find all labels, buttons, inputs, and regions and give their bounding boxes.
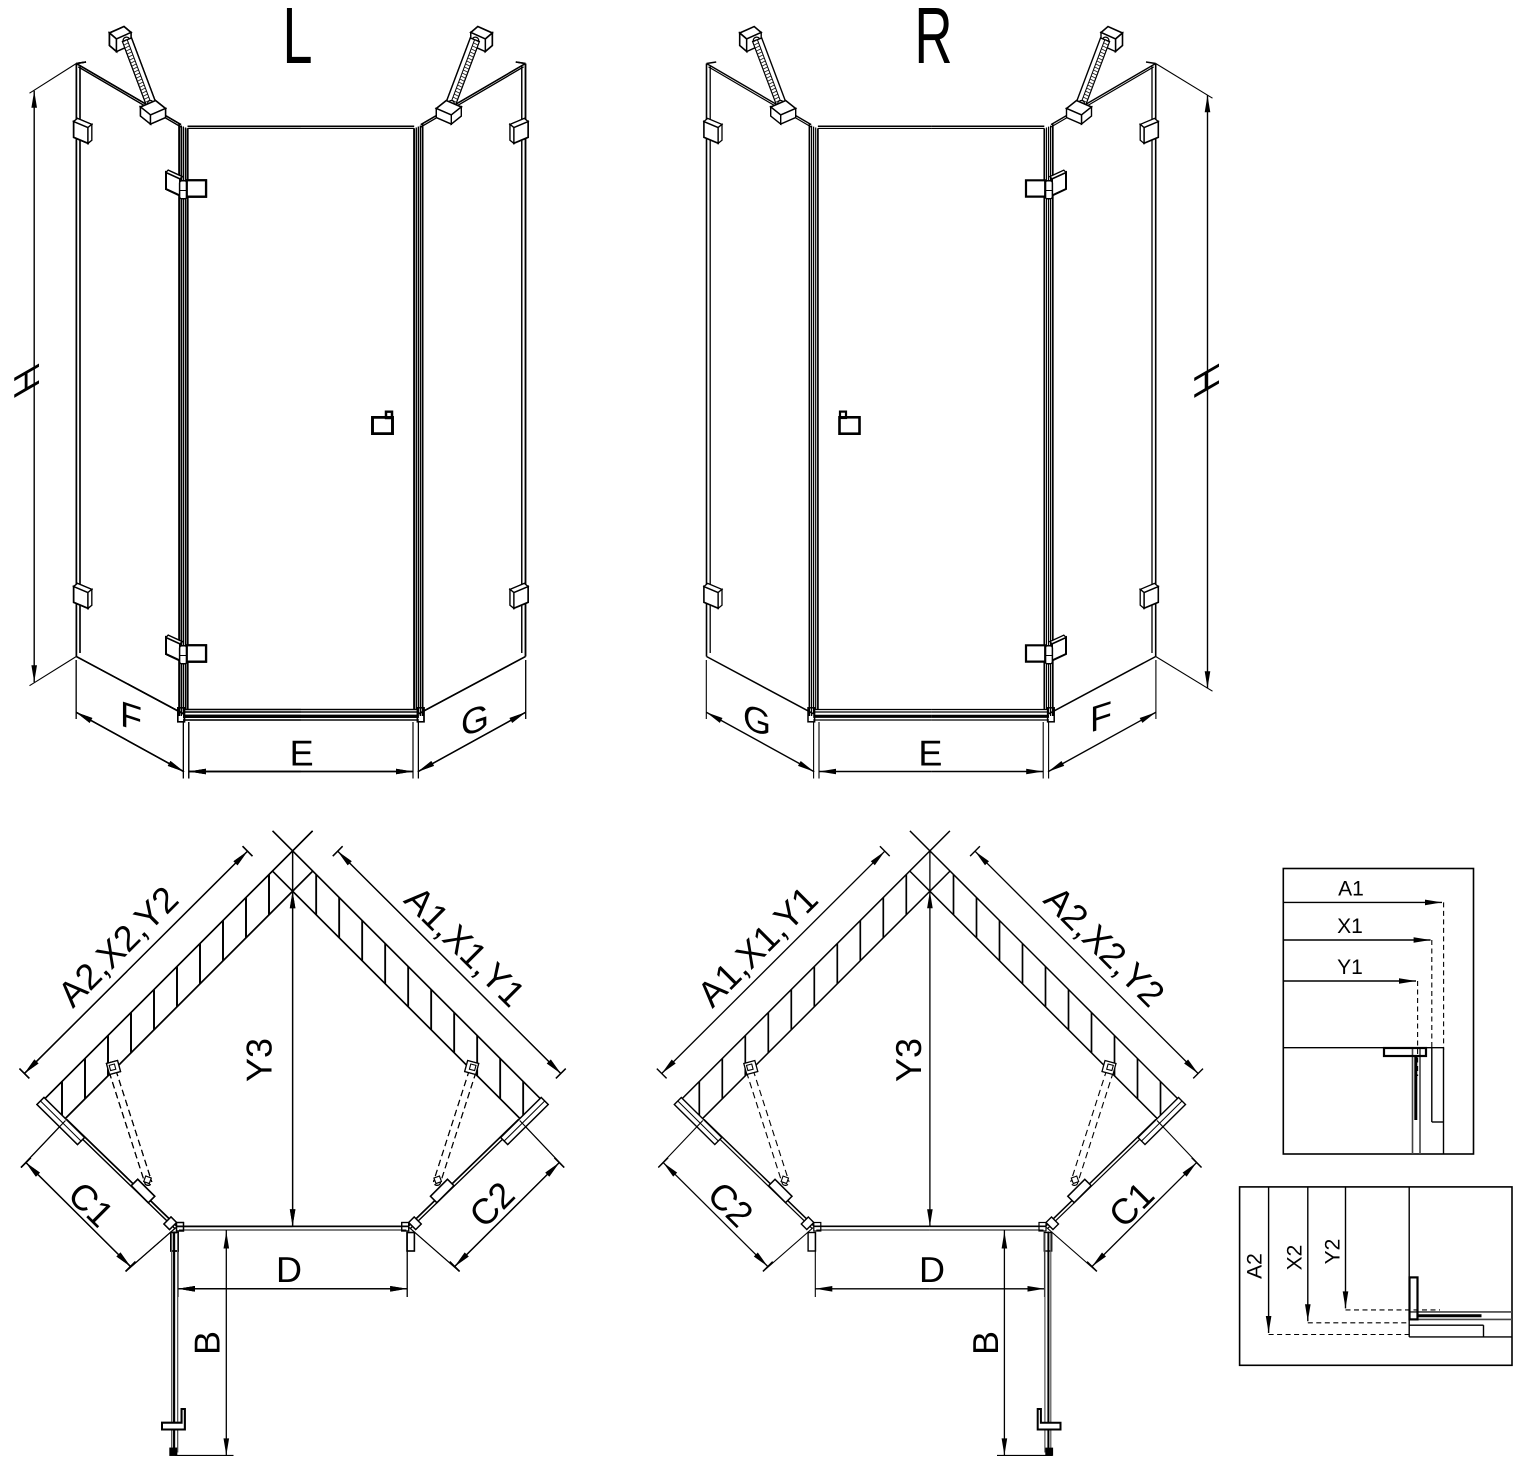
svg-text:A1: A1 <box>1338 878 1364 901</box>
svg-text:Y3: Y3 <box>888 1038 929 1082</box>
svg-text:Y3: Y3 <box>239 1038 280 1082</box>
svg-text:D: D <box>276 1249 302 1290</box>
svg-text:D: D <box>919 1249 945 1290</box>
svg-text:Y2: Y2 <box>1322 1239 1345 1265</box>
svg-text:E: E <box>918 733 942 774</box>
svg-text:F: F <box>120 692 142 740</box>
svg-text:E: E <box>290 733 314 774</box>
svg-text:X1: X1 <box>1337 915 1363 938</box>
svg-text:F: F <box>1090 692 1112 740</box>
svg-text:L: L <box>283 0 313 80</box>
svg-text:A2: A2 <box>1244 1253 1267 1279</box>
svg-text:Y1: Y1 <box>1337 956 1363 979</box>
svg-text:B: B <box>187 1331 228 1355</box>
svg-text:X2: X2 <box>1284 1245 1307 1271</box>
svg-text:R: R <box>915 0 953 80</box>
svg-text:B: B <box>965 1331 1006 1355</box>
